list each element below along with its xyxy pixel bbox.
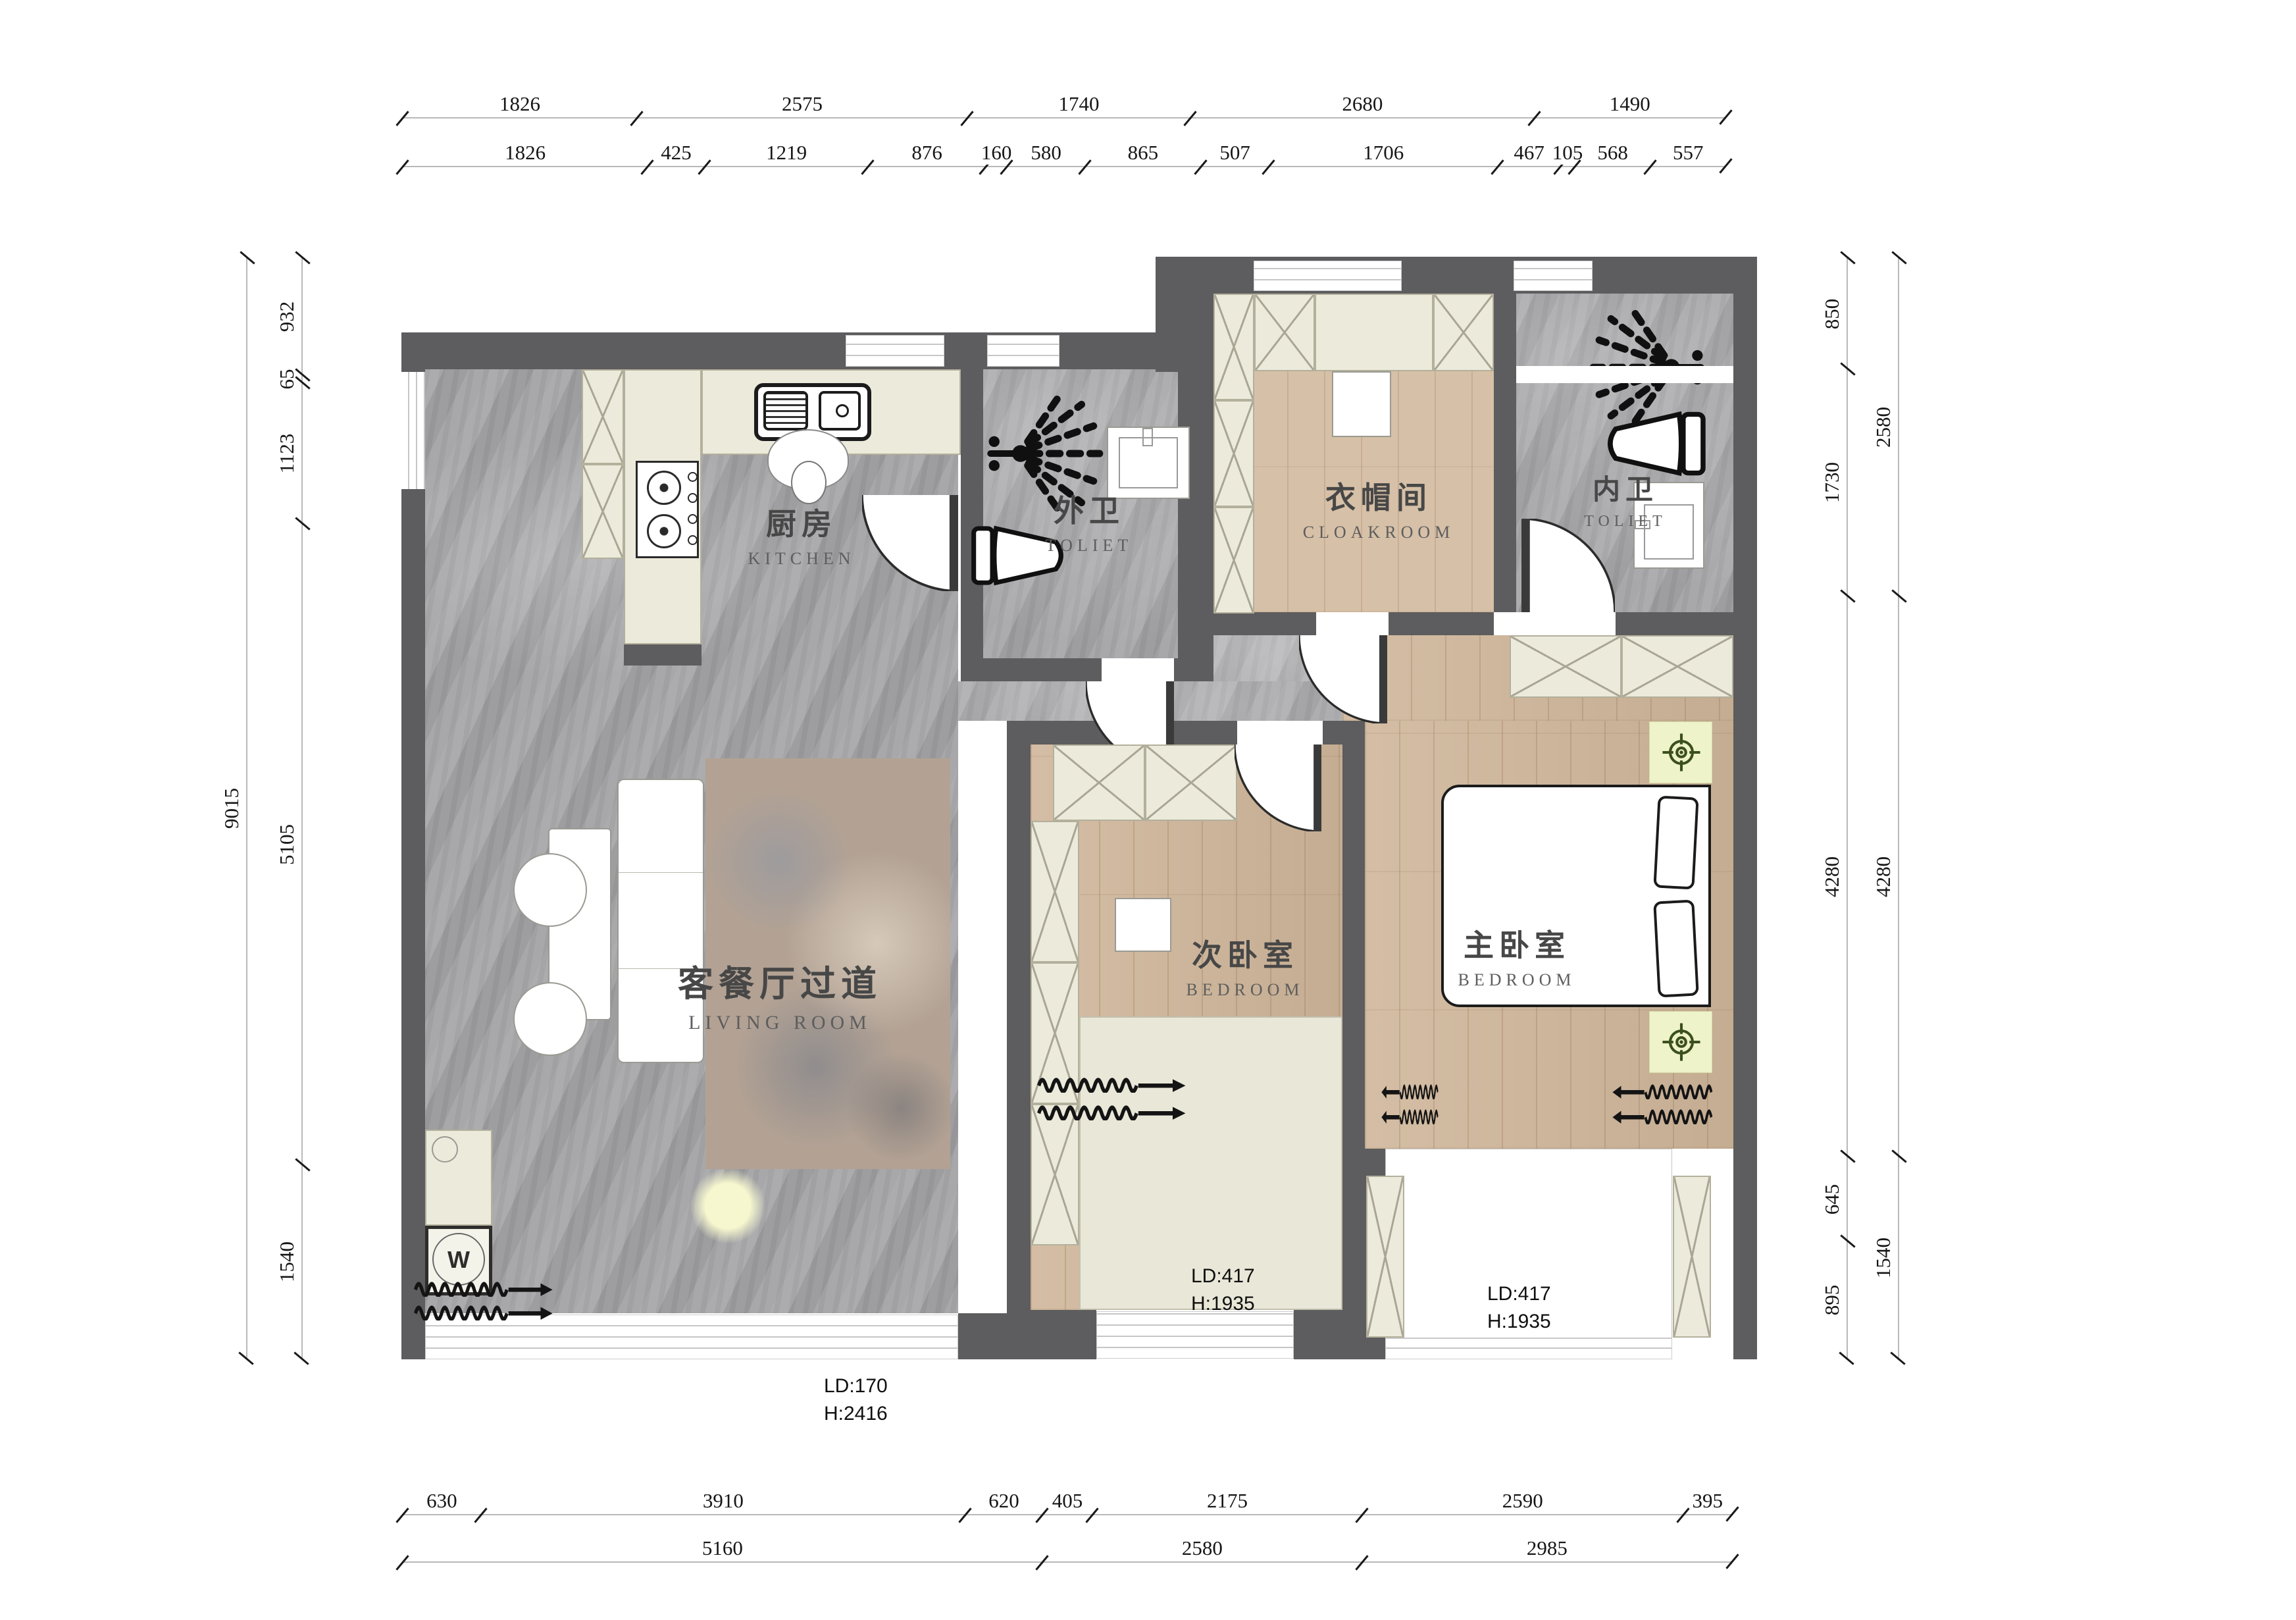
dimension-value: 557: [1670, 141, 1706, 165]
dimension-segment: 1123: [301, 383, 303, 524]
dimension-segment: 4280: [1898, 596, 1899, 1157]
dimension-segment: 1490: [1535, 117, 1725, 118]
dimension-value: 9015: [220, 788, 243, 829]
curtain-squiggle: [1611, 1106, 1713, 1124]
wall-second-bay-left: [1031, 1310, 1096, 1359]
dimension-value: 1219: [763, 141, 809, 165]
wall-right: [1733, 257, 1757, 1359]
curtain-squiggle: [413, 1302, 555, 1320]
kitchen-tall-cabinet-upper: [582, 369, 624, 464]
hall-closet-right: [1621, 635, 1733, 698]
wall-cloak-wc-divider: [1494, 294, 1516, 612]
window-left-wall: [401, 372, 425, 489]
dimension-value: 1540: [1872, 1238, 1895, 1278]
cloak-wardrobe-left-2: [1213, 400, 1254, 507]
second-wardrobe-top-1: [1053, 745, 1145, 821]
dimension-segment: 5160: [403, 1561, 1042, 1563]
bed-pillow-top: [1653, 795, 1698, 889]
dimension-value: 568: [1594, 141, 1631, 165]
curtain-squiggle: [1036, 1074, 1188, 1093]
stove-burner-bottom: [647, 514, 681, 548]
hall-closet-left: [1510, 635, 1621, 698]
master-bay-window-band: [1385, 1338, 1672, 1359]
dimension-segment: 630: [403, 1514, 481, 1515]
room-label-living: 客餐厅过道 LIVING ROOM: [678, 954, 882, 1034]
ceiling-light-target-icon: [1659, 730, 1704, 775]
person-figure-head: [791, 461, 827, 504]
wall-wc-bottom: [1616, 612, 1733, 635]
wall-master-bay-bottom-stub: [1342, 1338, 1385, 1359]
second-bedroom-door: [1235, 745, 1321, 831]
dim-chain-left-inner: 93265112351051540: [301, 258, 303, 1359]
dimension-value: 5105: [275, 824, 299, 865]
stove-knob-2: [688, 493, 698, 503]
dimension-segment: 2590: [1362, 1514, 1683, 1515]
dimension-segment: 9015: [246, 258, 247, 1359]
dimension-value: 865: [1125, 141, 1161, 165]
dimension-value: 2580: [1179, 1536, 1225, 1560]
annotation-second-bay: LD:417 H:1935: [1191, 1263, 1255, 1318]
dimension-segment: 1219: [705, 166, 868, 167]
balcony-window: [425, 1315, 958, 1359]
master-bay-cabinet-left: [1366, 1176, 1404, 1338]
dimension-value: 876: [909, 141, 945, 165]
cloak-dresser: [1332, 371, 1391, 437]
curtain-squiggle: [1611, 1081, 1713, 1099]
curtain-squiggle: [1381, 1106, 1439, 1124]
dimension-segment: 2680: [1190, 117, 1534, 118]
dimension-value: 65: [275, 369, 299, 389]
dimension-value: 4280: [1872, 856, 1895, 897]
dimension-segment: 645: [1847, 1157, 1848, 1241]
dim-chain-top-row1: 18262575174026801490: [403, 117, 1725, 118]
dimension-value: 2175: [1204, 1489, 1250, 1513]
sink-basin-left: [763, 391, 808, 431]
dim-chain-right-inner: 85017304280645895: [1847, 258, 1848, 1359]
dimension-value: 2580: [1872, 407, 1895, 448]
dimension-segment: 932: [301, 258, 303, 375]
kitchen-tall-cabinet-lower: [582, 464, 624, 559]
dimension-segment: 865: [1085, 166, 1201, 167]
basin-tap: [1142, 428, 1153, 446]
dimension-value: 630: [424, 1489, 460, 1513]
table-seam-1: [619, 872, 703, 873]
washer-drum: W: [432, 1233, 485, 1286]
dimension-value: 1706: [1360, 141, 1406, 165]
kitchen-stove: [636, 461, 699, 558]
floor-lamp-glow: [690, 1168, 766, 1244]
wall-toilet-cloak-divider: [1178, 372, 1213, 658]
room-label-master-bedroom: 主卧室 BEDROOM: [1458, 922, 1575, 990]
stove-knob-1: [688, 472, 698, 482]
dimension-value: 395: [1690, 1489, 1726, 1513]
dimension-value: 405: [1050, 1489, 1086, 1513]
dimension-value: 2590: [1500, 1489, 1546, 1513]
wall-bedroom-divider: [1342, 721, 1365, 1359]
wall-second-bedroom-left: [1007, 721, 1031, 1359]
inner-toilet-door: [1521, 519, 1615, 612]
dimension-value: 4280: [1820, 856, 1844, 897]
dimension-segment: 467: [1498, 166, 1560, 167]
dimension-value: 645: [1820, 1184, 1844, 1215]
dimension-value: 467: [1511, 141, 1547, 165]
curtain-squiggle: [413, 1278, 555, 1297]
dimension-segment: 2575: [637, 117, 967, 118]
dimension-value: 507: [1217, 141, 1253, 165]
wall-kitchen-stub: [624, 642, 702, 666]
dim-chain-right-outer: 258042801540: [1898, 258, 1899, 1359]
stove-knob-4: [688, 535, 698, 545]
dimension-segment: 895: [1847, 1241, 1848, 1359]
dimension-value: 2575: [779, 92, 825, 116]
dimension-segment: 1740: [967, 117, 1190, 118]
wall-top-upper: [1156, 257, 1757, 294]
master-nightstand-top: [1649, 721, 1712, 783]
dimension-value: 1826: [497, 92, 543, 116]
dim-chain-bottom-row1: 630391062040521752590395: [403, 1514, 1732, 1515]
dimension-value: 580: [1028, 141, 1064, 165]
stove-burner-top: [647, 471, 681, 505]
floor-plan-page: 18262575174026801490 1826425121987616058…: [0, 0, 2296, 1620]
window-kitchen-top: [846, 335, 944, 367]
dimension-value: 850: [1820, 298, 1844, 329]
dimension-value: 1540: [275, 1241, 299, 1282]
dimension-segment: 620: [965, 1514, 1042, 1515]
inner-toilet-partition: [1516, 366, 1733, 383]
dimension-value: 2985: [1524, 1536, 1570, 1560]
dimension-segment: 850: [1847, 258, 1848, 369]
bed-blanket-fold: [1602, 787, 1648, 833]
room-label-inner-toilet: 内卫 TOLIET: [1584, 467, 1667, 531]
dimension-segment: 2175: [1092, 1514, 1362, 1515]
stove-knob-3: [688, 514, 698, 524]
bed-pillow-bottom: [1653, 899, 1699, 997]
dimension-segment: 3910: [481, 1514, 965, 1515]
cloak-wardrobe-top-right: [1433, 294, 1494, 371]
room-label-second-bedroom: 次卧室 BEDROOM: [1186, 931, 1304, 1000]
dim-chain-bottom-row2: 516025802985: [403, 1561, 1732, 1563]
dimension-segment: 1826: [403, 117, 637, 118]
dim-chain-left-outer: 9015: [246, 258, 247, 1359]
dining-chair-top: [513, 853, 587, 927]
second-nightstand: [1115, 898, 1171, 952]
laundry-counter: [425, 1130, 492, 1226]
cloak-wardrobe-top-middle: [1315, 294, 1433, 371]
dimension-value: 160: [979, 141, 1015, 165]
dimension-segment: 580: [1007, 166, 1084, 167]
annotation-living-window: LD:170 H:2416: [824, 1372, 888, 1428]
wall-cloak-bottom-a: [1213, 612, 1316, 635]
dimension-segment: 568: [1575, 166, 1651, 167]
dimension-segment: 2580: [1042, 1561, 1362, 1563]
cloak-wardrobe-left-3: [1213, 507, 1254, 614]
ceiling-light-target-icon: [1659, 1020, 1704, 1064]
dimension-value: 1740: [1056, 92, 1102, 116]
dim-chain-top-row2: 1826425121987616058086550717064671055685…: [403, 166, 1725, 167]
dimension-segment: 4280: [1847, 596, 1848, 1157]
wall-outer-toilet-hinge: [1174, 658, 1213, 681]
dimension-segment: 405: [1042, 1514, 1092, 1515]
dimension-value: 1123: [275, 434, 299, 474]
dimension-segment: 5105: [301, 524, 303, 1165]
dimension-value: 932: [275, 301, 299, 332]
wall-cloak-bottom-b: [1389, 612, 1494, 635]
room-label-outer-toilet: 外卫 TOLIET: [1046, 487, 1133, 556]
dimension-value: 2680: [1339, 92, 1385, 116]
dimension-segment: 557: [1650, 166, 1725, 167]
cloak-wardrobe-left-1: [1213, 294, 1254, 400]
dimension-value: 1490: [1607, 92, 1653, 116]
cloakroom-door: [1299, 635, 1387, 723]
second-bedroom-bay-window: [1096, 1311, 1294, 1359]
dimension-value: 5160: [700, 1536, 746, 1560]
dimension-segment: 507: [1201, 166, 1269, 167]
dimension-value: 895: [1820, 1285, 1844, 1316]
wall-balcony-corner: [958, 1313, 1007, 1359]
curtain-squiggle: [1381, 1081, 1439, 1099]
room-label-kitchen: 厨房 KITCHEN: [748, 500, 855, 569]
dimension-segment: 876: [868, 166, 986, 167]
dimension-value: 1730: [1820, 462, 1844, 503]
second-wardrobe-top-2: [1145, 745, 1237, 821]
cloak-wardrobe-top-left: [1254, 294, 1315, 371]
dimension-segment: 1540: [1898, 1157, 1899, 1359]
window-outer-toilet-top: [987, 335, 1059, 367]
dimension-segment: 425: [648, 166, 705, 167]
dimension-segment: 1540: [301, 1165, 303, 1359]
dimension-value: 620: [986, 1489, 1022, 1513]
dimension-segment: 2985: [1362, 1561, 1732, 1563]
master-bay-cabinet-right: [1673, 1176, 1711, 1338]
annotation-master-bay: LD:417 H:1935: [1487, 1280, 1551, 1336]
room-label-cloakroom: 衣帽间 CLOAKROOM: [1303, 474, 1455, 542]
dining-chair-bottom: [513, 982, 587, 1056]
master-nightstand-bottom: [1649, 1011, 1712, 1073]
dimension-value: 1826: [502, 141, 548, 165]
second-wardrobe-left-1: [1031, 821, 1079, 962]
sink-drain: [836, 404, 849, 417]
window-inner-toilet-top: [1514, 261, 1593, 291]
kitchen-door: [862, 495, 958, 591]
dimension-value: 425: [658, 141, 694, 165]
dimension-segment: 1730: [1847, 369, 1848, 596]
dimension-segment: 395: [1683, 1514, 1732, 1515]
laundry-sink: [432, 1136, 458, 1163]
dimension-segment: 160: [986, 166, 1008, 167]
window-cloakroom-top: [1254, 261, 1402, 291]
wall-outer-toilet-left: [961, 332, 983, 681]
dimension-segment: 1706: [1269, 166, 1498, 167]
wall-outer-toilet-bottom: [961, 658, 1102, 681]
dimension-value: 3910: [700, 1489, 746, 1513]
dimension-segment: 1826: [403, 166, 648, 167]
curtain-squiggle: [1036, 1102, 1188, 1120]
dimension-segment: 2580: [1898, 258, 1899, 596]
second-wardrobe-left-3: [1031, 1104, 1079, 1245]
